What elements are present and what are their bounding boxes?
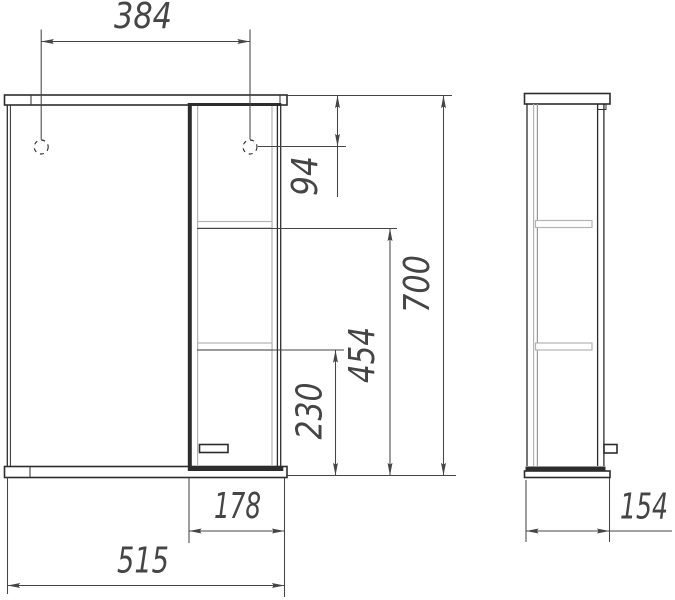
dim-label-shelf-section-width: 178: [214, 486, 261, 527]
cabinet-technical-drawing: 384 94 700 454 230 178 515 1: [0, 0, 675, 600]
side-top-step: [598, 104, 606, 110]
mounting-hole-right: [243, 140, 257, 154]
dimension-depth: 154: [526, 478, 672, 542]
dimension-hole-spacing: 384: [41, 0, 250, 140]
side-upper-shelf: [536, 221, 593, 228]
dimension-lower-shelf-from-bottom: 230: [197, 350, 344, 476]
front-view: [5, 95, 288, 478]
dim-label-hole-spacing: 384: [114, 0, 172, 37]
mounting-hole-left: [34, 140, 48, 154]
dimension-hole-offset-from-top: 94: [258, 96, 452, 198]
side-view: [525, 94, 618, 478]
dim-label-total-height: 700: [397, 255, 438, 313]
dim-label-lower-shelf: 230: [290, 383, 331, 440]
front-lower-shelf: [198, 343, 272, 350]
side-door-handle: [604, 445, 617, 454]
dim-label-depth: 154: [620, 487, 668, 528]
front-divider: [188, 103, 192, 467]
drawing-canvas: 384 94 700 454 230 178 515 1: [0, 0, 675, 600]
side-top-panel: [525, 94, 611, 105]
side-base-panel: [525, 471, 611, 478]
side-bottom-edge: [526, 467, 606, 472]
dim-label-total-width: 515: [117, 541, 169, 582]
front-shelf-section-bottom-edge: [188, 467, 283, 472]
dim-label-upper-shelf: 454: [342, 327, 383, 383]
dim-label-hole-offset: 94: [285, 156, 326, 196]
front-upper-shelf: [198, 222, 272, 229]
dimension-shelf-section-width: 178: [189, 478, 285, 597]
side-lower-shelf: [536, 343, 593, 350]
front-door-handle: [200, 445, 229, 453]
front-shelf-section-top-edge: [188, 103, 281, 106]
